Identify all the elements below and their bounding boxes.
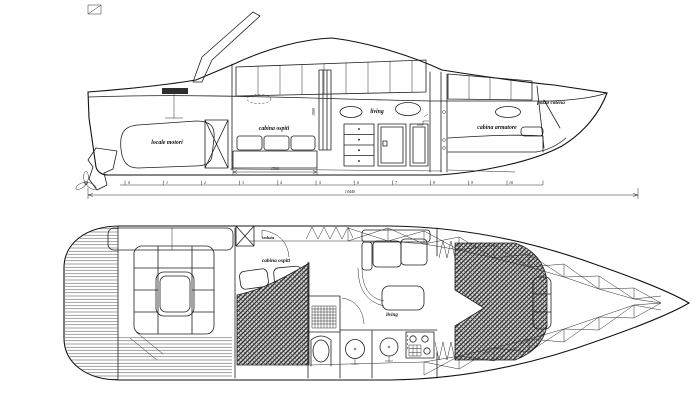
guest-sofa-cushion	[264, 136, 289, 150]
cabinet-door	[378, 124, 406, 166]
label-living: living	[370, 109, 384, 115]
overall-length-dimension: 10440	[88, 188, 638, 199]
cockpit-u-settee	[134, 246, 214, 334]
ruler-tick-label: 3	[242, 180, 244, 185]
label-chain-locker: pozzo catena	[536, 100, 565, 106]
bulkhead-fitting	[443, 147, 446, 150]
stove	[406, 332, 434, 358]
cabinet-door	[410, 124, 428, 166]
dim-cabin-height: 1880	[311, 108, 316, 116]
saloon-table	[382, 286, 424, 310]
bulkhead-fitting	[443, 111, 446, 114]
ruler-tick-label: 10	[509, 180, 513, 185]
owner-bulkhead	[441, 72, 447, 172]
saloon-cushion	[401, 239, 427, 265]
ruler-tick-label: 5	[319, 180, 321, 185]
bathroom-walls	[308, 262, 437, 378]
label-guest-cabin: cabina ospiti	[259, 126, 290, 132]
bathroom-door-arc	[342, 298, 364, 324]
porthole	[396, 103, 421, 116]
toilet	[313, 340, 329, 362]
curved-seat	[358, 268, 384, 306]
porthole	[496, 107, 521, 118]
ruler-tick-label: 6	[357, 180, 359, 185]
companionway-steps	[306, 227, 353, 239]
owner-berth	[448, 135, 566, 152]
owner-pillow	[521, 127, 543, 136]
ruler-tick-label: 1	[166, 180, 168, 185]
mast-column	[319, 70, 331, 150]
boat-technical-drawing: 1500 0 1 2 3 4	[0, 0, 700, 400]
guest-sofa-cushion	[291, 136, 315, 150]
cockpit-aft-sofa	[108, 228, 233, 250]
deck-plan: seduta cabina ospiti	[64, 226, 689, 380]
guest-bed-carpet	[237, 263, 309, 365]
ruler-tick-label: 0	[128, 180, 130, 185]
ruler-tick-label: 8	[433, 180, 435, 185]
label-plan-guest-cabin: cabina ospiti	[262, 258, 291, 264]
galley-sink	[380, 338, 398, 362]
helm-console	[162, 88, 188, 94]
drawing-canvas: 1500 0 1 2 3 4	[0, 0, 700, 400]
porthole	[340, 107, 362, 118]
drawer-stack	[344, 124, 374, 166]
ruler-tick-label: 7	[395, 180, 398, 185]
dim-guest-berth: 1500	[271, 166, 280, 171]
saloon-cushion	[373, 241, 401, 267]
shower-grate	[312, 306, 336, 328]
propeller	[75, 172, 97, 191]
saloon-sofa-arm	[362, 242, 372, 270]
label-plan-seat: seduta	[261, 235, 275, 240]
step-glyph	[417, 114, 429, 125]
side-elevation: 1500 0 1 2 3 4	[75, 5, 638, 199]
ruler-tick-label: 4	[280, 180, 282, 185]
stern-platform-teak	[65, 226, 118, 380]
label-plan-living: living	[386, 313, 398, 318]
tank-xbox	[205, 120, 228, 168]
scale-ruler: 0 1 2 3 4 5 6 7 8 9 10	[120, 180, 543, 185]
guest-sofa-cushion	[237, 136, 262, 150]
chain-locker-wall	[537, 86, 560, 148]
dim-overall-length: 10440	[345, 189, 356, 194]
saloon-window-mullions	[258, 61, 412, 96]
helm-pedestal	[165, 94, 183, 118]
antenna	[88, 5, 101, 14]
cockpit-table	[156, 272, 194, 316]
washbasin	[346, 340, 365, 366]
toilet-alcove	[311, 336, 331, 366]
radar-arch	[193, 12, 260, 82]
ruler-tick-label: 2	[204, 180, 206, 185]
deck-hatch-xbox	[236, 226, 254, 246]
label-engine-room: locale motori	[151, 140, 183, 146]
ruler-tick-label: 9	[471, 180, 473, 185]
bulkhead-fitting	[443, 139, 446, 142]
label-owner-cabin: cabina armatore	[477, 125, 517, 131]
